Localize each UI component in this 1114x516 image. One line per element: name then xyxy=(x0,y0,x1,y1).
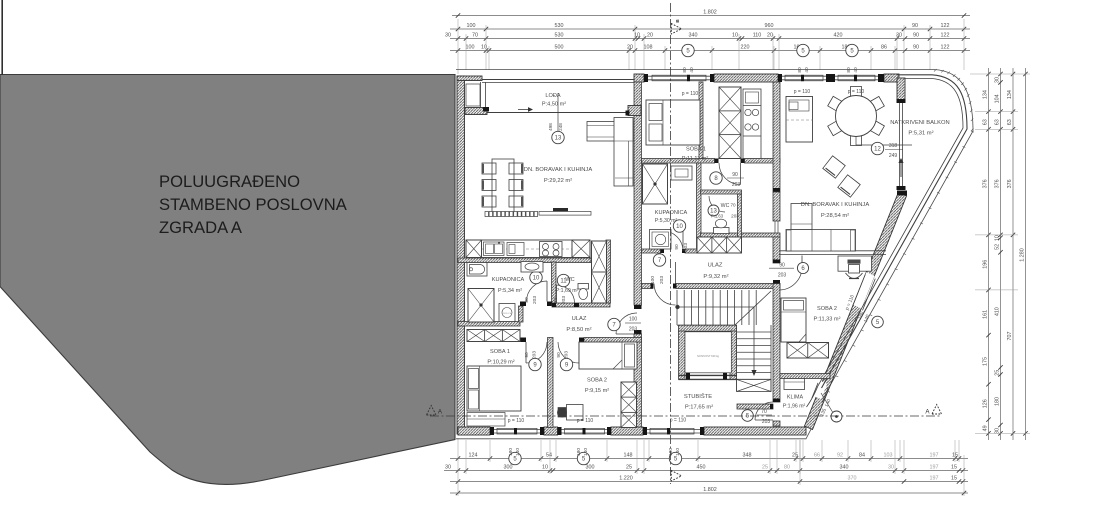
svg-text:249: 249 xyxy=(889,153,898,159)
svg-text:90: 90 xyxy=(912,23,918,29)
svg-text:90: 90 xyxy=(556,352,562,358)
svg-text:DN. BORAVAK I KUHINJA: DN. BORAVAK I KUHINJA xyxy=(801,202,870,208)
svg-text:20: 20 xyxy=(767,33,773,39)
svg-text:197: 197 xyxy=(930,476,939,482)
svg-text:148: 148 xyxy=(624,453,633,459)
svg-text:203: 203 xyxy=(683,243,689,251)
svg-text:P:1,69 m²: P:1,69 m² xyxy=(556,288,579,294)
svg-text:140: 140 xyxy=(583,448,589,456)
svg-text:KUPAONICA: KUPAONICA xyxy=(655,210,688,216)
svg-text:13: 13 xyxy=(555,136,562,142)
svg-text:25: 25 xyxy=(792,453,798,459)
svg-text:180: 180 xyxy=(995,397,1001,406)
svg-text:90: 90 xyxy=(524,352,530,358)
svg-text:498: 498 xyxy=(548,123,553,131)
svg-text:P:11,33 m²: P:11,33 m² xyxy=(814,317,841,323)
svg-text:63: 63 xyxy=(983,119,989,125)
svg-text:p = 110: p = 110 xyxy=(577,418,594,424)
svg-text:196: 196 xyxy=(983,260,989,269)
svg-text:KLIMA: KLIMA xyxy=(787,395,804,401)
svg-text:960: 960 xyxy=(765,23,774,29)
svg-text:1.802: 1.802 xyxy=(703,10,717,16)
svg-text:SOBA 1: SOBA 1 xyxy=(490,349,510,355)
svg-text:70: 70 xyxy=(553,297,559,303)
svg-text:WC: WC xyxy=(565,277,574,283)
svg-text:203: 203 xyxy=(564,351,570,359)
svg-text:52: 52 xyxy=(995,244,1001,250)
svg-text:104: 104 xyxy=(995,94,1001,103)
svg-text:63: 63 xyxy=(995,119,1001,125)
svg-text:30: 30 xyxy=(995,428,1001,434)
svg-text:P:5,34 m²: P:5,34 m² xyxy=(498,288,522,294)
svg-text:530: 530 xyxy=(555,33,564,39)
svg-text:122: 122 xyxy=(941,33,950,39)
svg-text:108: 108 xyxy=(644,45,653,51)
svg-text:P:4,50 m²: P:4,50 m² xyxy=(542,102,566,108)
svg-text:P:9,32 m²: P:9,32 m² xyxy=(703,274,728,280)
svg-text:90: 90 xyxy=(913,45,919,51)
svg-text:340: 340 xyxy=(840,465,849,471)
svg-text:10: 10 xyxy=(995,235,1001,241)
svg-text:70: 70 xyxy=(472,33,478,39)
svg-text:POLUUGRAĐENO: POLUUGRAĐENO xyxy=(159,172,300,191)
svg-text:530: 530 xyxy=(555,23,564,29)
svg-text:134: 134 xyxy=(1007,90,1013,99)
svg-text:20: 20 xyxy=(627,45,633,51)
svg-text:p = 110: p = 110 xyxy=(848,89,865,95)
svg-text:15: 15 xyxy=(951,476,957,482)
svg-text:ULAZ: ULAZ xyxy=(572,316,587,322)
svg-text:100: 100 xyxy=(467,23,476,29)
svg-text:P:17,65 m²: P:17,65 m² xyxy=(685,405,713,411)
svg-text:ZGRADA A: ZGRADA A xyxy=(159,218,243,237)
svg-text:90: 90 xyxy=(674,244,680,250)
svg-text:P:28,54 m²: P:28,54 m² xyxy=(821,213,849,219)
svg-text:SOBA 2: SOBA 2 xyxy=(817,306,837,312)
svg-text:P:8,50 m²: P:8,50 m² xyxy=(566,327,591,333)
svg-text:WC: WC xyxy=(721,203,730,209)
svg-text:1.280: 1.280 xyxy=(1020,248,1026,262)
svg-text:p = 110: p = 110 xyxy=(508,418,525,424)
svg-text:12: 12 xyxy=(874,147,881,153)
svg-text:p = 110: p = 110 xyxy=(794,89,811,95)
svg-text:450: 450 xyxy=(697,465,706,471)
svg-text:30: 30 xyxy=(445,33,451,39)
svg-text:90: 90 xyxy=(732,172,738,178)
svg-text:P:1,63: P:1,63 xyxy=(711,214,724,219)
svg-text:10: 10 xyxy=(732,33,738,39)
svg-text:203: 203 xyxy=(659,276,665,284)
svg-text:376: 376 xyxy=(1007,179,1013,188)
svg-text:110: 110 xyxy=(753,33,762,39)
svg-text:STUBIŠTE: STUBIŠTE xyxy=(684,393,712,400)
svg-text:ULAZ: ULAZ xyxy=(708,263,723,269)
svg-text:80: 80 xyxy=(524,297,530,303)
svg-text:410: 410 xyxy=(995,307,1001,316)
svg-text:370: 370 xyxy=(848,476,857,482)
svg-text:25: 25 xyxy=(626,465,632,471)
svg-text:180: 180 xyxy=(668,448,674,456)
svg-text:90: 90 xyxy=(913,33,919,39)
svg-text:248: 248 xyxy=(558,123,563,131)
svg-text:30: 30 xyxy=(445,465,451,471)
svg-text:P:29,22 m²: P:29,22 m² xyxy=(544,178,572,184)
svg-text:70: 70 xyxy=(730,203,736,208)
svg-text:STAMBENO POSLOVNA: STAMBENO POSLOVNA xyxy=(159,195,348,214)
svg-text:15: 15 xyxy=(951,465,957,471)
svg-text:10: 10 xyxy=(533,276,540,282)
svg-text:348: 348 xyxy=(743,453,752,459)
svg-text:54: 54 xyxy=(546,453,552,459)
svg-text:SOBA 2: SOBA 2 xyxy=(587,378,607,384)
svg-text:203: 203 xyxy=(731,214,739,219)
svg-text:203: 203 xyxy=(732,182,741,188)
svg-text:66: 66 xyxy=(814,453,820,459)
svg-text:203: 203 xyxy=(532,351,538,359)
svg-text:1.220: 1.220 xyxy=(619,476,633,482)
svg-text:NOSIVOST 630 kg: NOSIVOST 630 kg xyxy=(697,354,719,358)
svg-text:100: 100 xyxy=(629,317,638,323)
svg-text:PERILICA: PERILICA xyxy=(503,312,512,315)
svg-text:134: 134 xyxy=(983,90,989,99)
svg-text:DN. BORAVAK I KUHINJA: DN. BORAVAK I KUHINJA xyxy=(524,167,593,173)
svg-text:20: 20 xyxy=(647,33,653,39)
svg-text:707: 707 xyxy=(1007,331,1013,340)
svg-text:80: 80 xyxy=(784,465,790,471)
svg-text:122: 122 xyxy=(941,45,950,51)
svg-text:p = 110: p = 110 xyxy=(682,91,699,97)
svg-text:49: 49 xyxy=(983,425,989,431)
svg-text:p = 110: p = 110 xyxy=(670,418,687,424)
svg-text:175: 175 xyxy=(983,357,989,366)
svg-text:318: 318 xyxy=(889,143,898,149)
svg-text:180: 180 xyxy=(508,448,514,456)
svg-text:122: 122 xyxy=(941,23,950,29)
svg-text:500: 500 xyxy=(555,45,564,51)
svg-text:30: 30 xyxy=(888,465,894,471)
svg-text:161: 161 xyxy=(983,310,989,319)
svg-text:84: 84 xyxy=(859,453,865,459)
svg-text:P:1,96 m²: P:1,96 m² xyxy=(783,404,806,410)
svg-text:10: 10 xyxy=(676,224,683,230)
svg-text:197: 197 xyxy=(930,453,939,459)
svg-text:340: 340 xyxy=(689,33,698,39)
svg-text:10: 10 xyxy=(542,465,548,471)
svg-text:25: 25 xyxy=(762,465,768,471)
svg-text:30: 30 xyxy=(995,77,1001,83)
svg-text:1.802: 1.802 xyxy=(703,487,717,493)
svg-text:140: 140 xyxy=(675,448,681,456)
svg-text:420: 420 xyxy=(834,33,843,39)
svg-text:NATKRIVENI BALKON: NATKRIVENI BALKON xyxy=(890,120,950,126)
svg-text:203: 203 xyxy=(532,296,538,304)
svg-text:90: 90 xyxy=(779,263,785,269)
svg-text:124: 124 xyxy=(469,453,478,459)
svg-text:140: 140 xyxy=(515,448,521,456)
svg-text:P:5,31 m²: P:5,31 m² xyxy=(908,131,933,137)
svg-text:300: 300 xyxy=(504,465,513,471)
svg-text:KUPAONICA: KUPAONICA xyxy=(492,277,525,283)
svg-text:203: 203 xyxy=(629,327,638,333)
svg-text:70: 70 xyxy=(761,409,767,415)
svg-text:92: 92 xyxy=(837,453,843,459)
svg-text:197: 197 xyxy=(930,465,939,471)
svg-text:25: 25 xyxy=(995,370,1001,376)
svg-text:203: 203 xyxy=(778,273,787,279)
svg-text:103: 103 xyxy=(884,453,893,459)
svg-text:86: 86 xyxy=(881,45,887,51)
svg-text:376: 376 xyxy=(983,179,989,188)
svg-text:100: 100 xyxy=(650,276,656,284)
svg-text:126: 126 xyxy=(983,399,989,408)
svg-text:SOBA 1: SOBA 1 xyxy=(686,147,706,153)
svg-text:63: 63 xyxy=(1007,119,1013,125)
svg-text:203: 203 xyxy=(762,419,771,425)
svg-text:180: 180 xyxy=(576,448,582,456)
svg-text:376: 376 xyxy=(995,179,1001,188)
svg-text:P:5,30 m²: P:5,30 m² xyxy=(655,218,678,224)
svg-text:LOĐA: LOĐA xyxy=(545,93,561,99)
svg-text:P:11,11 m²: P:11,11 m² xyxy=(682,156,709,162)
svg-text:100: 100 xyxy=(466,45,475,51)
svg-text:203: 203 xyxy=(561,296,567,304)
svg-text:P:10,29 m²: P:10,29 m² xyxy=(487,360,514,366)
svg-text:220: 220 xyxy=(741,45,750,51)
svg-text:300: 300 xyxy=(586,465,595,471)
svg-text:P:9,15 m²: P:9,15 m² xyxy=(585,388,609,394)
